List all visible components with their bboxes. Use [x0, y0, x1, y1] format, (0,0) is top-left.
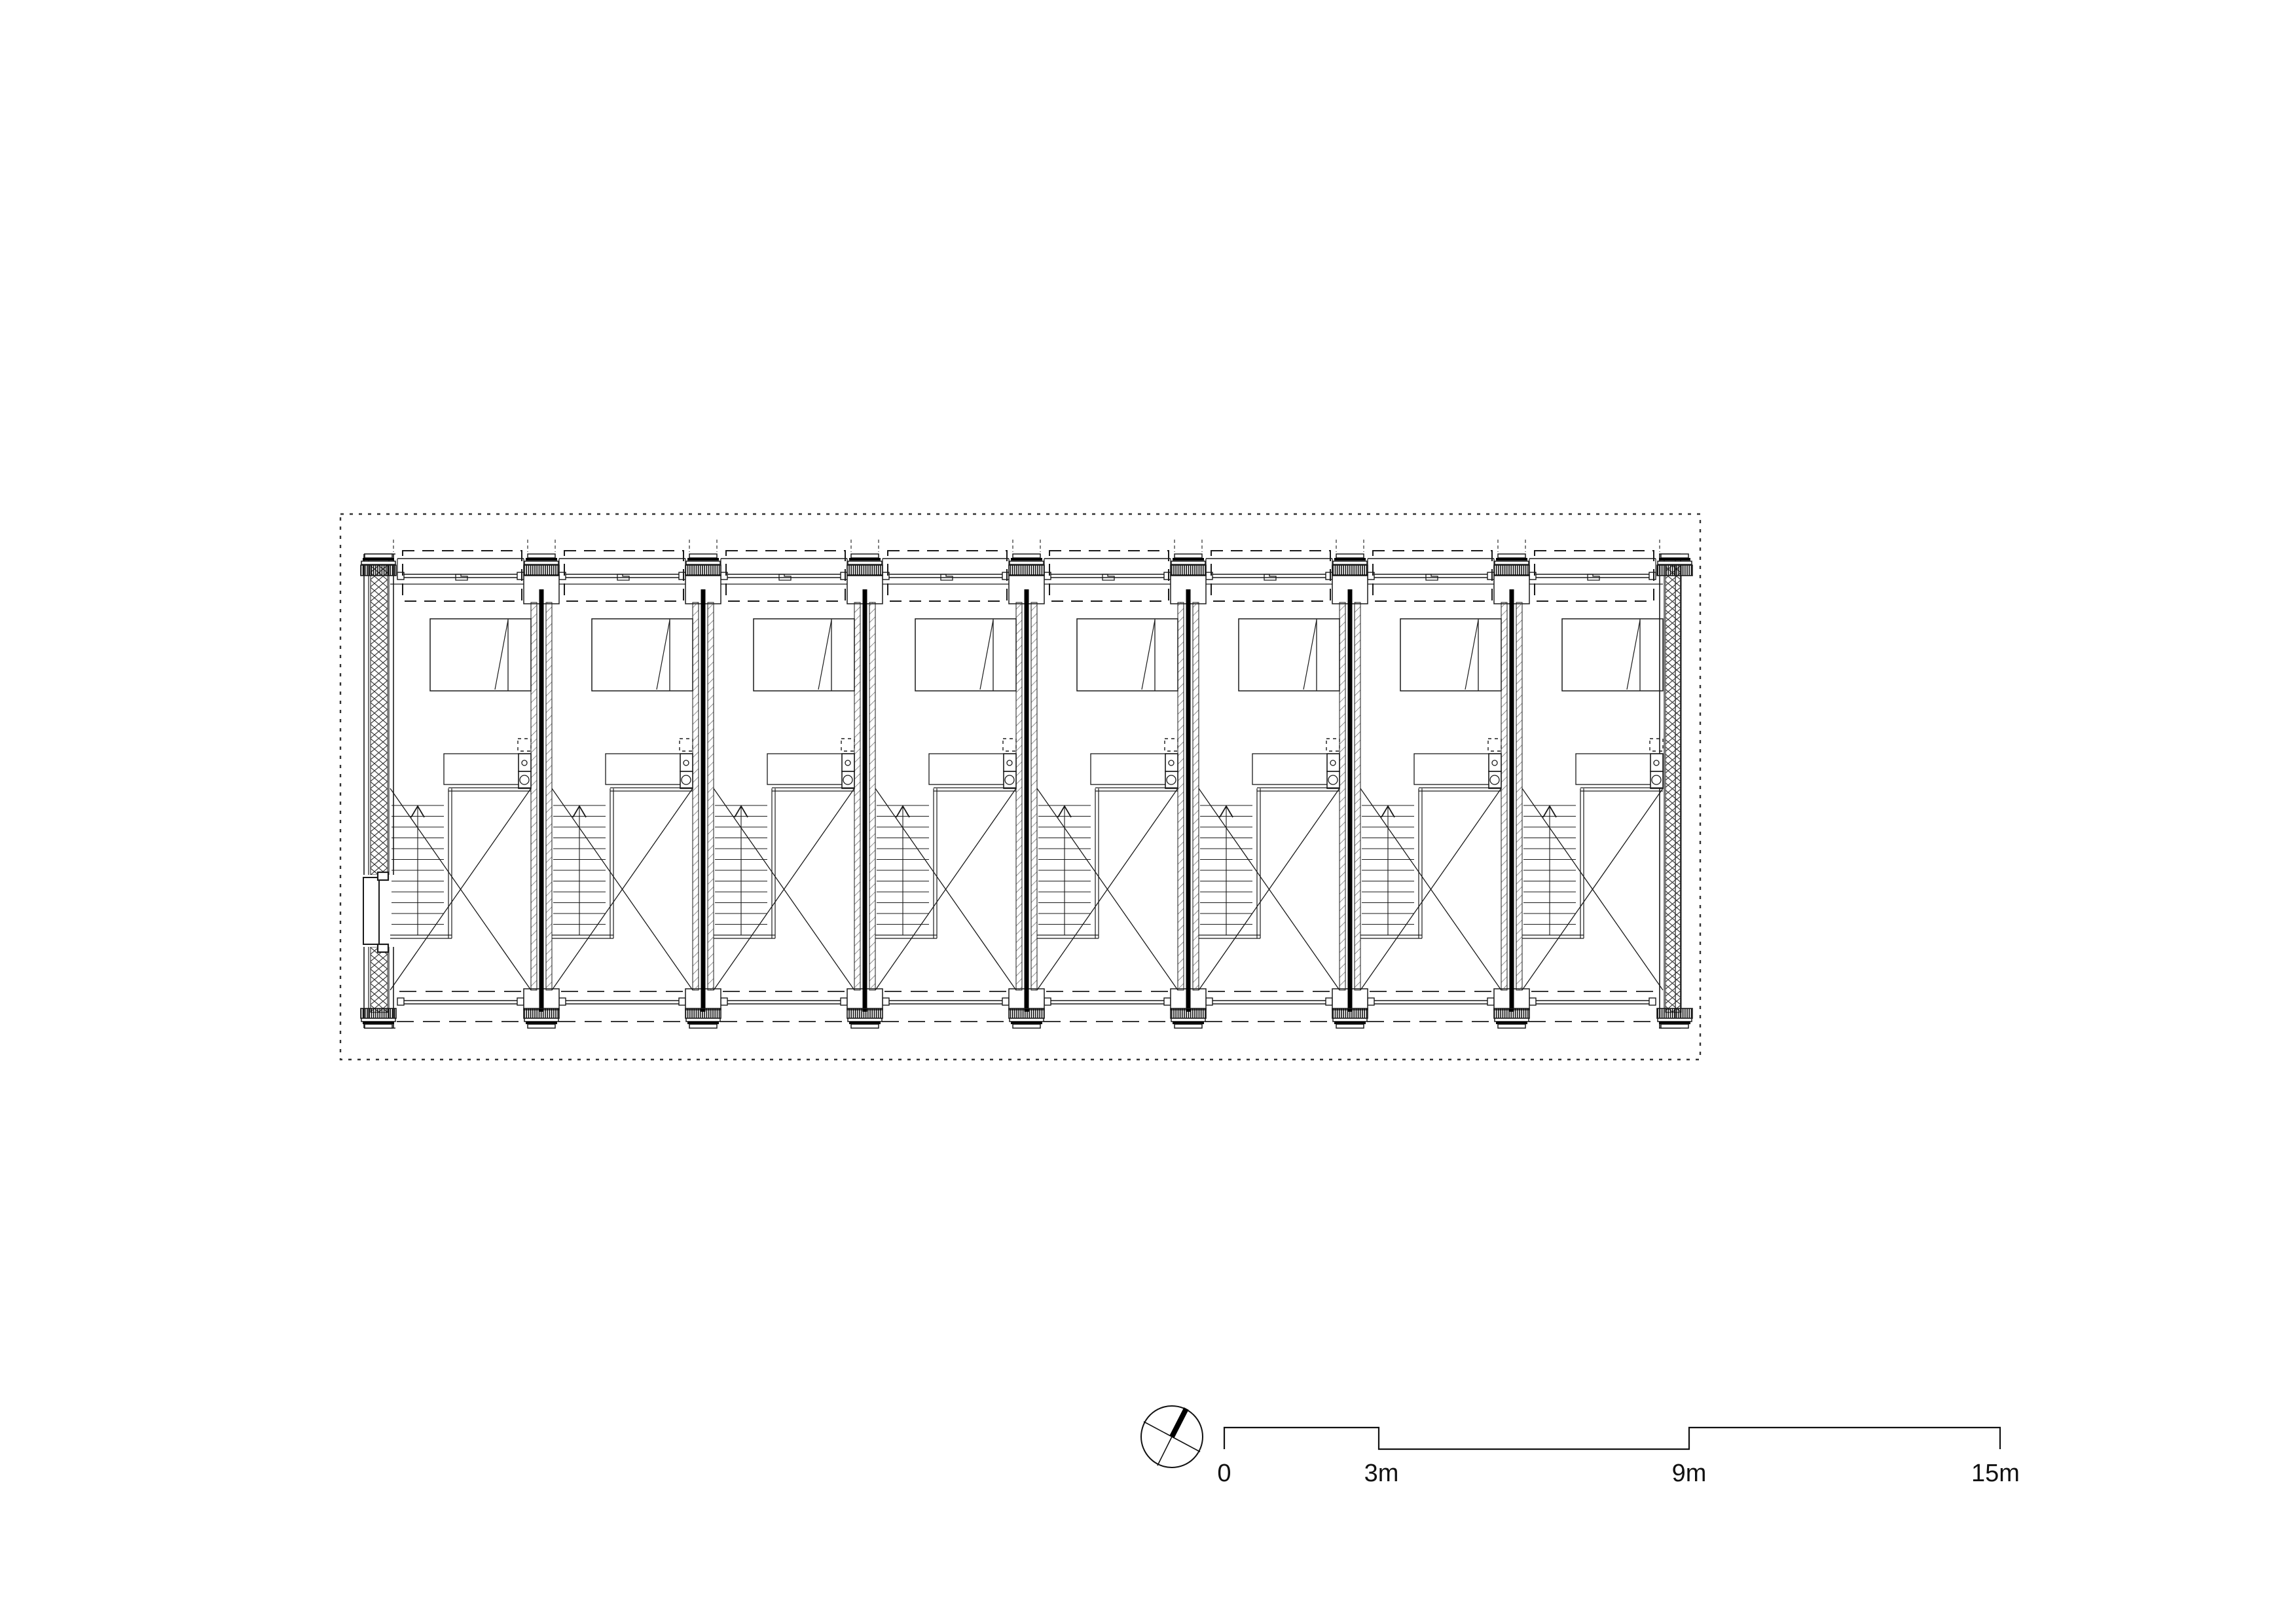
unit-2 [552, 619, 693, 990]
wall-cap-bar [1171, 561, 1205, 564]
north-arrow [1141, 1406, 1203, 1467]
window-mullion [1206, 998, 1212, 1005]
wall-cap-bar [689, 1024, 717, 1028]
sink-unit [1489, 754, 1501, 771]
party-wall-leaf [1339, 602, 1345, 990]
party-wall-leaf [1031, 602, 1037, 990]
wall-cap-bar [1658, 561, 1692, 564]
kitchen-counter [929, 754, 1016, 784]
void-diagonal [495, 620, 508, 690]
floor-plan-drawing: 0 3m 9m 15m [0, 0, 2296, 1624]
wall-cap-bar [365, 554, 392, 558]
wall-cap-bar [1495, 1018, 1529, 1022]
unit-3 [714, 619, 854, 990]
wall-cap-bar [1495, 561, 1529, 564]
window-mullion [1529, 998, 1536, 1005]
window-mullion [679, 998, 685, 1005]
window-mullion [1487, 998, 1494, 1005]
scale-label-9m: 9m [1672, 1460, 1707, 1487]
extractor-hood-outline [1165, 739, 1178, 751]
window-mullion [1164, 572, 1171, 580]
extractor-hood-outline [841, 739, 854, 751]
scale-bar: 0 3m 9m 15m [1217, 1428, 2020, 1487]
drawing-sheet: 0 3m 9m 15m [0, 0, 2296, 1624]
sink-unit [1327, 754, 1339, 771]
window-mullion [517, 572, 524, 580]
window-mullion [397, 998, 404, 1005]
sink-unit [519, 754, 531, 771]
kitchen-counter [1091, 754, 1178, 784]
wall-insulation [371, 947, 388, 1012]
wall-cap-insulation-block [1171, 565, 1206, 576]
window-mullion [1002, 998, 1009, 1005]
stair [392, 805, 444, 935]
void-diagonal [980, 620, 993, 690]
wall-cap-bar [526, 558, 557, 561]
void-diagonal [1627, 620, 1640, 690]
window-mullion [1487, 572, 1494, 580]
extractor-hood-outline [1488, 739, 1501, 751]
wall-cap-bar [849, 558, 881, 561]
wall-cap-bar [851, 1024, 879, 1028]
party-wall-leaf [531, 602, 537, 990]
stair [553, 805, 606, 935]
kitchen-counter [767, 754, 854, 784]
stair [715, 805, 767, 935]
window-mullion [559, 998, 566, 1005]
party-wall-core [539, 589, 544, 1012]
void-opening [592, 619, 693, 691]
void-opening [915, 619, 1016, 691]
stair [1038, 805, 1091, 935]
extractor-hood-outline [1326, 739, 1339, 751]
wall-cap-insulation-block [1009, 565, 1044, 576]
wall-insulation [1666, 564, 1681, 1012]
wall-cap-insulation-block [847, 1008, 883, 1018]
party-wall-leaf [693, 602, 699, 990]
wall-cap-bar [686, 1018, 720, 1022]
void-diagonal [1465, 620, 1478, 690]
wall-cap-bar [1175, 1024, 1202, 1028]
window-mullion [841, 572, 847, 580]
party-wall-leaf [1193, 602, 1199, 990]
extractor-hood-outline [680, 739, 693, 751]
wall-cap-bar [1173, 558, 1204, 561]
wall-cap-insulation-block [524, 565, 559, 576]
kitchen-counter [444, 754, 531, 784]
wall-cap-bar [689, 554, 717, 558]
wall-cap-insulation-block [361, 565, 396, 576]
wall-cap-insulation-block [524, 1008, 559, 1018]
party-wall-core [1025, 589, 1029, 1012]
void-opening [1239, 619, 1339, 691]
wall-cap-bar [1336, 554, 1364, 558]
wall-cap-bar [1498, 554, 1525, 558]
scale-label-15m: 15m [1971, 1460, 2020, 1487]
wall-cap-bar [1010, 1018, 1044, 1022]
wall-cap-bar [365, 1024, 392, 1028]
window-mullion [517, 998, 524, 1005]
void-opening [1400, 619, 1501, 691]
party-wall-leaf [1016, 602, 1022, 990]
scale-label-0: 0 [1217, 1460, 1231, 1487]
party-wall-leaf [1178, 602, 1184, 990]
sink-unit [1165, 754, 1178, 771]
wall-cap-bar [1010, 561, 1044, 564]
unit-8 [1522, 619, 1663, 990]
wall-cap-bar [528, 554, 555, 558]
wall-cap-bar [851, 554, 879, 558]
party-wall-core [1186, 589, 1191, 1012]
stair [877, 805, 929, 935]
wall-cap-insulation-block [1332, 1008, 1368, 1018]
extractor-hood-outline [1650, 739, 1663, 751]
wall-cap-insulation-block [1657, 565, 1692, 576]
wall-cap-bar [1175, 554, 1202, 558]
void-diagonal [1142, 620, 1155, 690]
scale-label-3m: 3m [1364, 1460, 1399, 1487]
party-wall-core [1510, 589, 1514, 1012]
kitchen-counter [1414, 754, 1501, 784]
window-mullion [721, 998, 727, 1005]
wall-cap-bar [361, 1018, 395, 1022]
wall-cap-bar [361, 561, 395, 564]
window-mullion [1326, 572, 1332, 580]
wall-cap-bar [1498, 1024, 1525, 1028]
wall-cap-bar [363, 558, 394, 561]
party-wall-leaf [1516, 602, 1522, 990]
party-wall-leaf [854, 602, 860, 990]
unit-5 [1037, 619, 1178, 990]
wall-cap-insulation-block [361, 1008, 396, 1018]
window-mullion [1368, 998, 1374, 1005]
stair [1362, 805, 1414, 935]
unit-6 [1199, 619, 1339, 990]
void-diagonal [818, 620, 831, 690]
wall-cap-insulation-block [1657, 1008, 1692, 1018]
wall-cap-insulation-block [847, 565, 883, 576]
window-mullion [1002, 572, 1009, 580]
kitchen-counter [1576, 754, 1663, 784]
window-mullion [1649, 998, 1656, 1005]
wall-cap-bar [1661, 554, 1688, 558]
sink-unit [1650, 754, 1663, 771]
door-frame-jamb [378, 944, 388, 952]
party-wall-leaf [1355, 602, 1360, 990]
party-wall-leaf [869, 602, 875, 990]
extractor-hood-outline [1003, 739, 1016, 751]
wall-cap-bar [1334, 558, 1366, 561]
kitchen-counter [1252, 754, 1339, 784]
wall-cap-bar [686, 561, 720, 564]
party-wall-core [1348, 589, 1353, 1012]
party-wall-leaf [546, 602, 552, 990]
void-diagonal [1303, 620, 1317, 690]
extractor-hood-outline [518, 739, 531, 751]
wall-cap-bar [1659, 558, 1690, 561]
sink-unit [680, 754, 693, 771]
kitchen-counter [606, 754, 693, 784]
wall-cap-insulation-block [685, 565, 721, 576]
wall-cap-bar [1661, 1024, 1688, 1028]
wall-cap-insulation-block [685, 1008, 721, 1018]
wall-cap-bar [1333, 1018, 1367, 1022]
wall-cap-bar [1336, 1024, 1364, 1028]
void-opening [1562, 619, 1663, 691]
wall-cap-insulation-block [1332, 565, 1368, 576]
wall-cap-insulation-block [1009, 1008, 1044, 1018]
window-mullion [1164, 998, 1171, 1005]
wall-cap-bar [1011, 558, 1042, 561]
building-plan [361, 540, 1692, 1028]
unit-7 [1360, 619, 1501, 990]
wall-cap-bar [848, 561, 882, 564]
wall-insulation [371, 564, 388, 875]
wall-cap-bar [524, 561, 558, 564]
window-mullion [841, 998, 847, 1005]
door-frame-jamb [378, 872, 388, 880]
scale-bar-line [1224, 1428, 2000, 1449]
party-wall-core [701, 589, 706, 1012]
wall-cap-bar [687, 558, 719, 561]
window-mullion [883, 998, 889, 1005]
stair [1200, 805, 1252, 935]
wall-cap-insulation-block [1494, 1008, 1529, 1018]
sink-unit [842, 754, 854, 771]
wall-cap-bar [528, 1024, 555, 1028]
unit-1 [390, 619, 531, 990]
stair [1523, 805, 1576, 935]
unit-4 [875, 619, 1016, 990]
void-opening [1077, 619, 1178, 691]
party-wall-leaf [708, 602, 714, 990]
sink-unit [1004, 754, 1016, 771]
party-wall-core [863, 589, 867, 1012]
wall-cap-insulation-block [1494, 565, 1529, 576]
wall-cap-bar [1658, 1018, 1692, 1022]
party-wall-leaf [1501, 602, 1507, 990]
void-opening [430, 619, 531, 691]
wall-cap-bar [524, 1018, 558, 1022]
exterior-wall-left [361, 554, 396, 1028]
window-mullion [1044, 998, 1051, 1005]
window-mullion [679, 572, 685, 580]
wall-cap-bar [1496, 558, 1527, 561]
window-mullion [1326, 998, 1332, 1005]
void-opening [754, 619, 854, 691]
wall-cap-insulation-block [1171, 1008, 1206, 1018]
wall-cap-bar [1013, 1024, 1040, 1028]
wall-cap-bar [1171, 1018, 1205, 1022]
wall-cap-bar [1013, 554, 1040, 558]
void-diagonal [657, 620, 670, 690]
window-mullion [1649, 572, 1656, 580]
entrance-door-leaf [363, 877, 379, 944]
wall-cap-bar [848, 1018, 882, 1022]
wall-cap-bar [1333, 561, 1367, 564]
